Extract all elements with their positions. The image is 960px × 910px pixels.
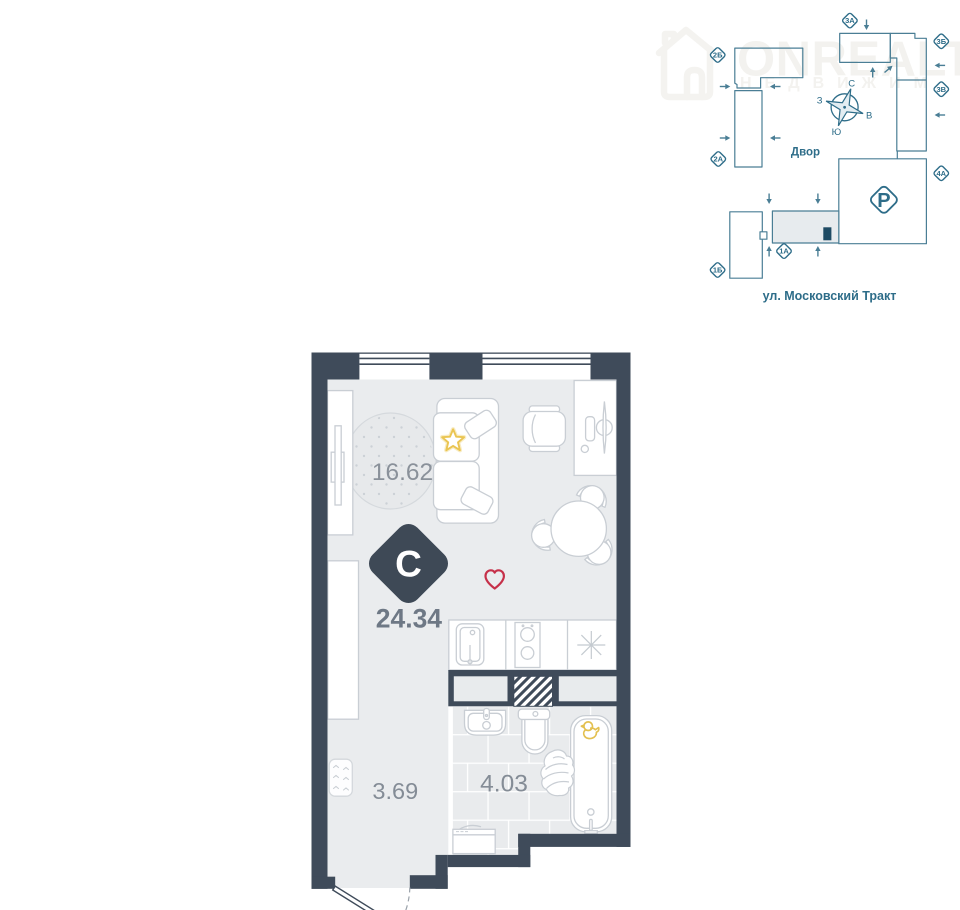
svg-text:Ю: Ю — [832, 127, 842, 138]
svg-text:3А: 3А — [845, 16, 855, 25]
svg-text:1Б: 1Б — [713, 266, 723, 275]
svg-text:1А: 1А — [779, 247, 789, 256]
svg-text:16.62: 16.62 — [372, 459, 433, 486]
svg-text:3Б: 3Б — [937, 37, 947, 46]
svg-text:2Б: 2Б — [713, 51, 723, 60]
svg-text:24.34: 24.34 — [376, 604, 443, 634]
svg-text:3.69: 3.69 — [372, 778, 418, 804]
svg-text:З: З — [817, 95, 823, 106]
svg-text:В: В — [866, 110, 872, 121]
svg-text:4А: 4А — [937, 169, 947, 178]
svg-text:С: С — [848, 79, 855, 90]
svg-text:4.03: 4.03 — [480, 771, 528, 798]
svg-text:3В: 3В — [937, 85, 947, 94]
svg-text:Р: Р — [877, 190, 890, 212]
svg-text:ул. Московский Тракт: ул. Московский Тракт — [763, 289, 897, 303]
svg-text:Двор: Двор — [791, 147, 820, 159]
svg-text:2А: 2А — [714, 155, 724, 164]
svg-text:С: С — [395, 544, 422, 585]
